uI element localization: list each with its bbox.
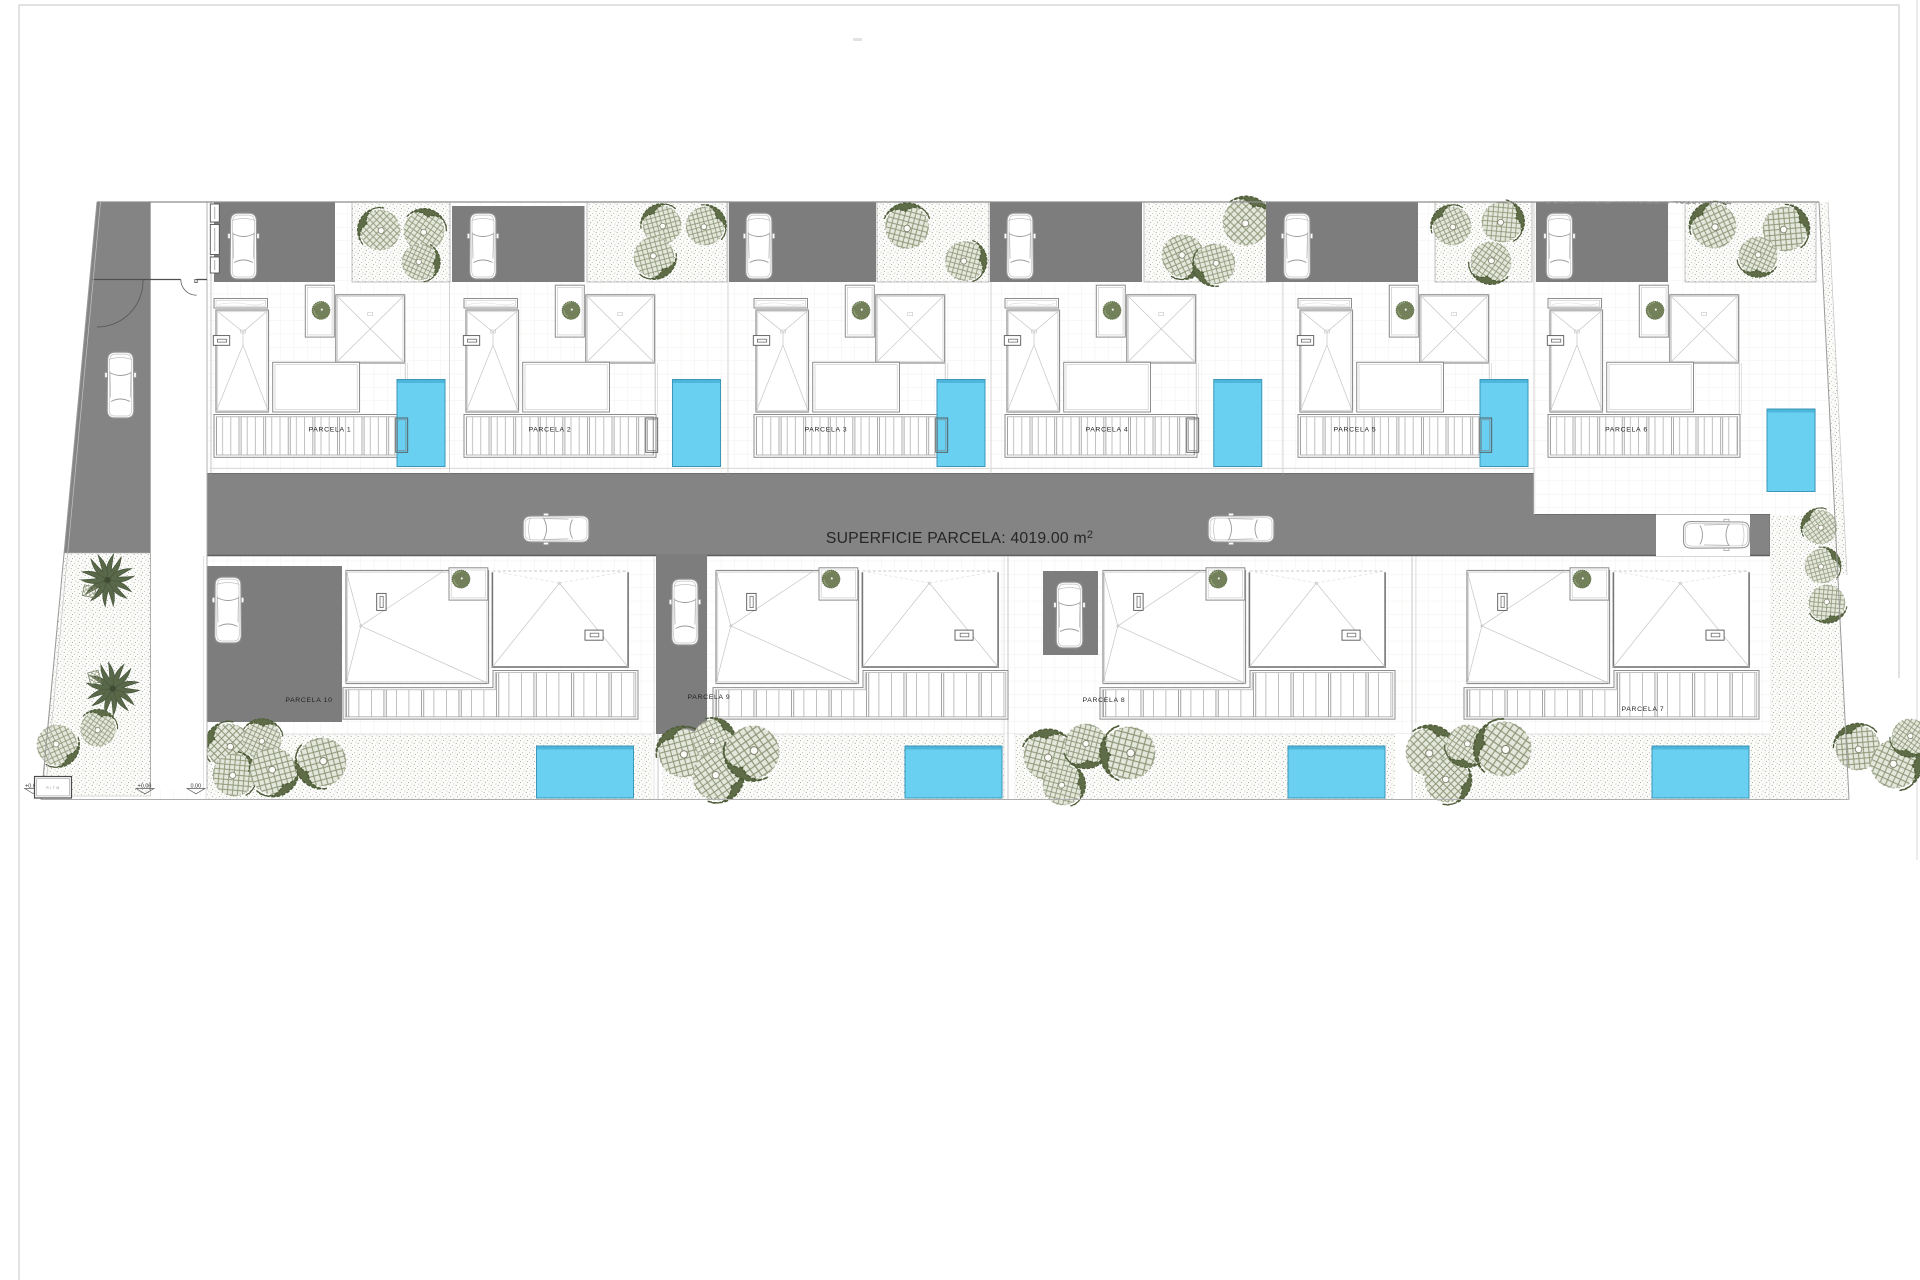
svg-text:PARCELA 7: PARCELA 7	[1622, 706, 1665, 713]
svg-text:PARCELA 1: PARCELA 1	[309, 427, 352, 434]
svg-text:PARCELA 6: PARCELA 6	[1605, 427, 1648, 434]
svg-text:PARCELA 10: PARCELA 10	[285, 697, 332, 704]
svg-text:PARCELA 2: PARCELA 2	[529, 427, 572, 434]
svg-text:PARCELA 9: PARCELA 9	[688, 694, 731, 701]
svg-text:PARCELA 8: PARCELA 8	[1083, 697, 1126, 704]
svg-text:R I T M: R I T M	[46, 786, 59, 790]
svg-text:PARCELA 4: PARCELA 4	[1086, 427, 1129, 434]
svg-text:PARCELA 3: PARCELA 3	[805, 427, 848, 434]
svg-text:PARCELA 5: PARCELA 5	[1334, 427, 1377, 434]
svg-text:SUPERFICIE PARCELA: 4019.00 m2: SUPERFICIE PARCELA: 4019.00 m2	[826, 529, 1093, 547]
